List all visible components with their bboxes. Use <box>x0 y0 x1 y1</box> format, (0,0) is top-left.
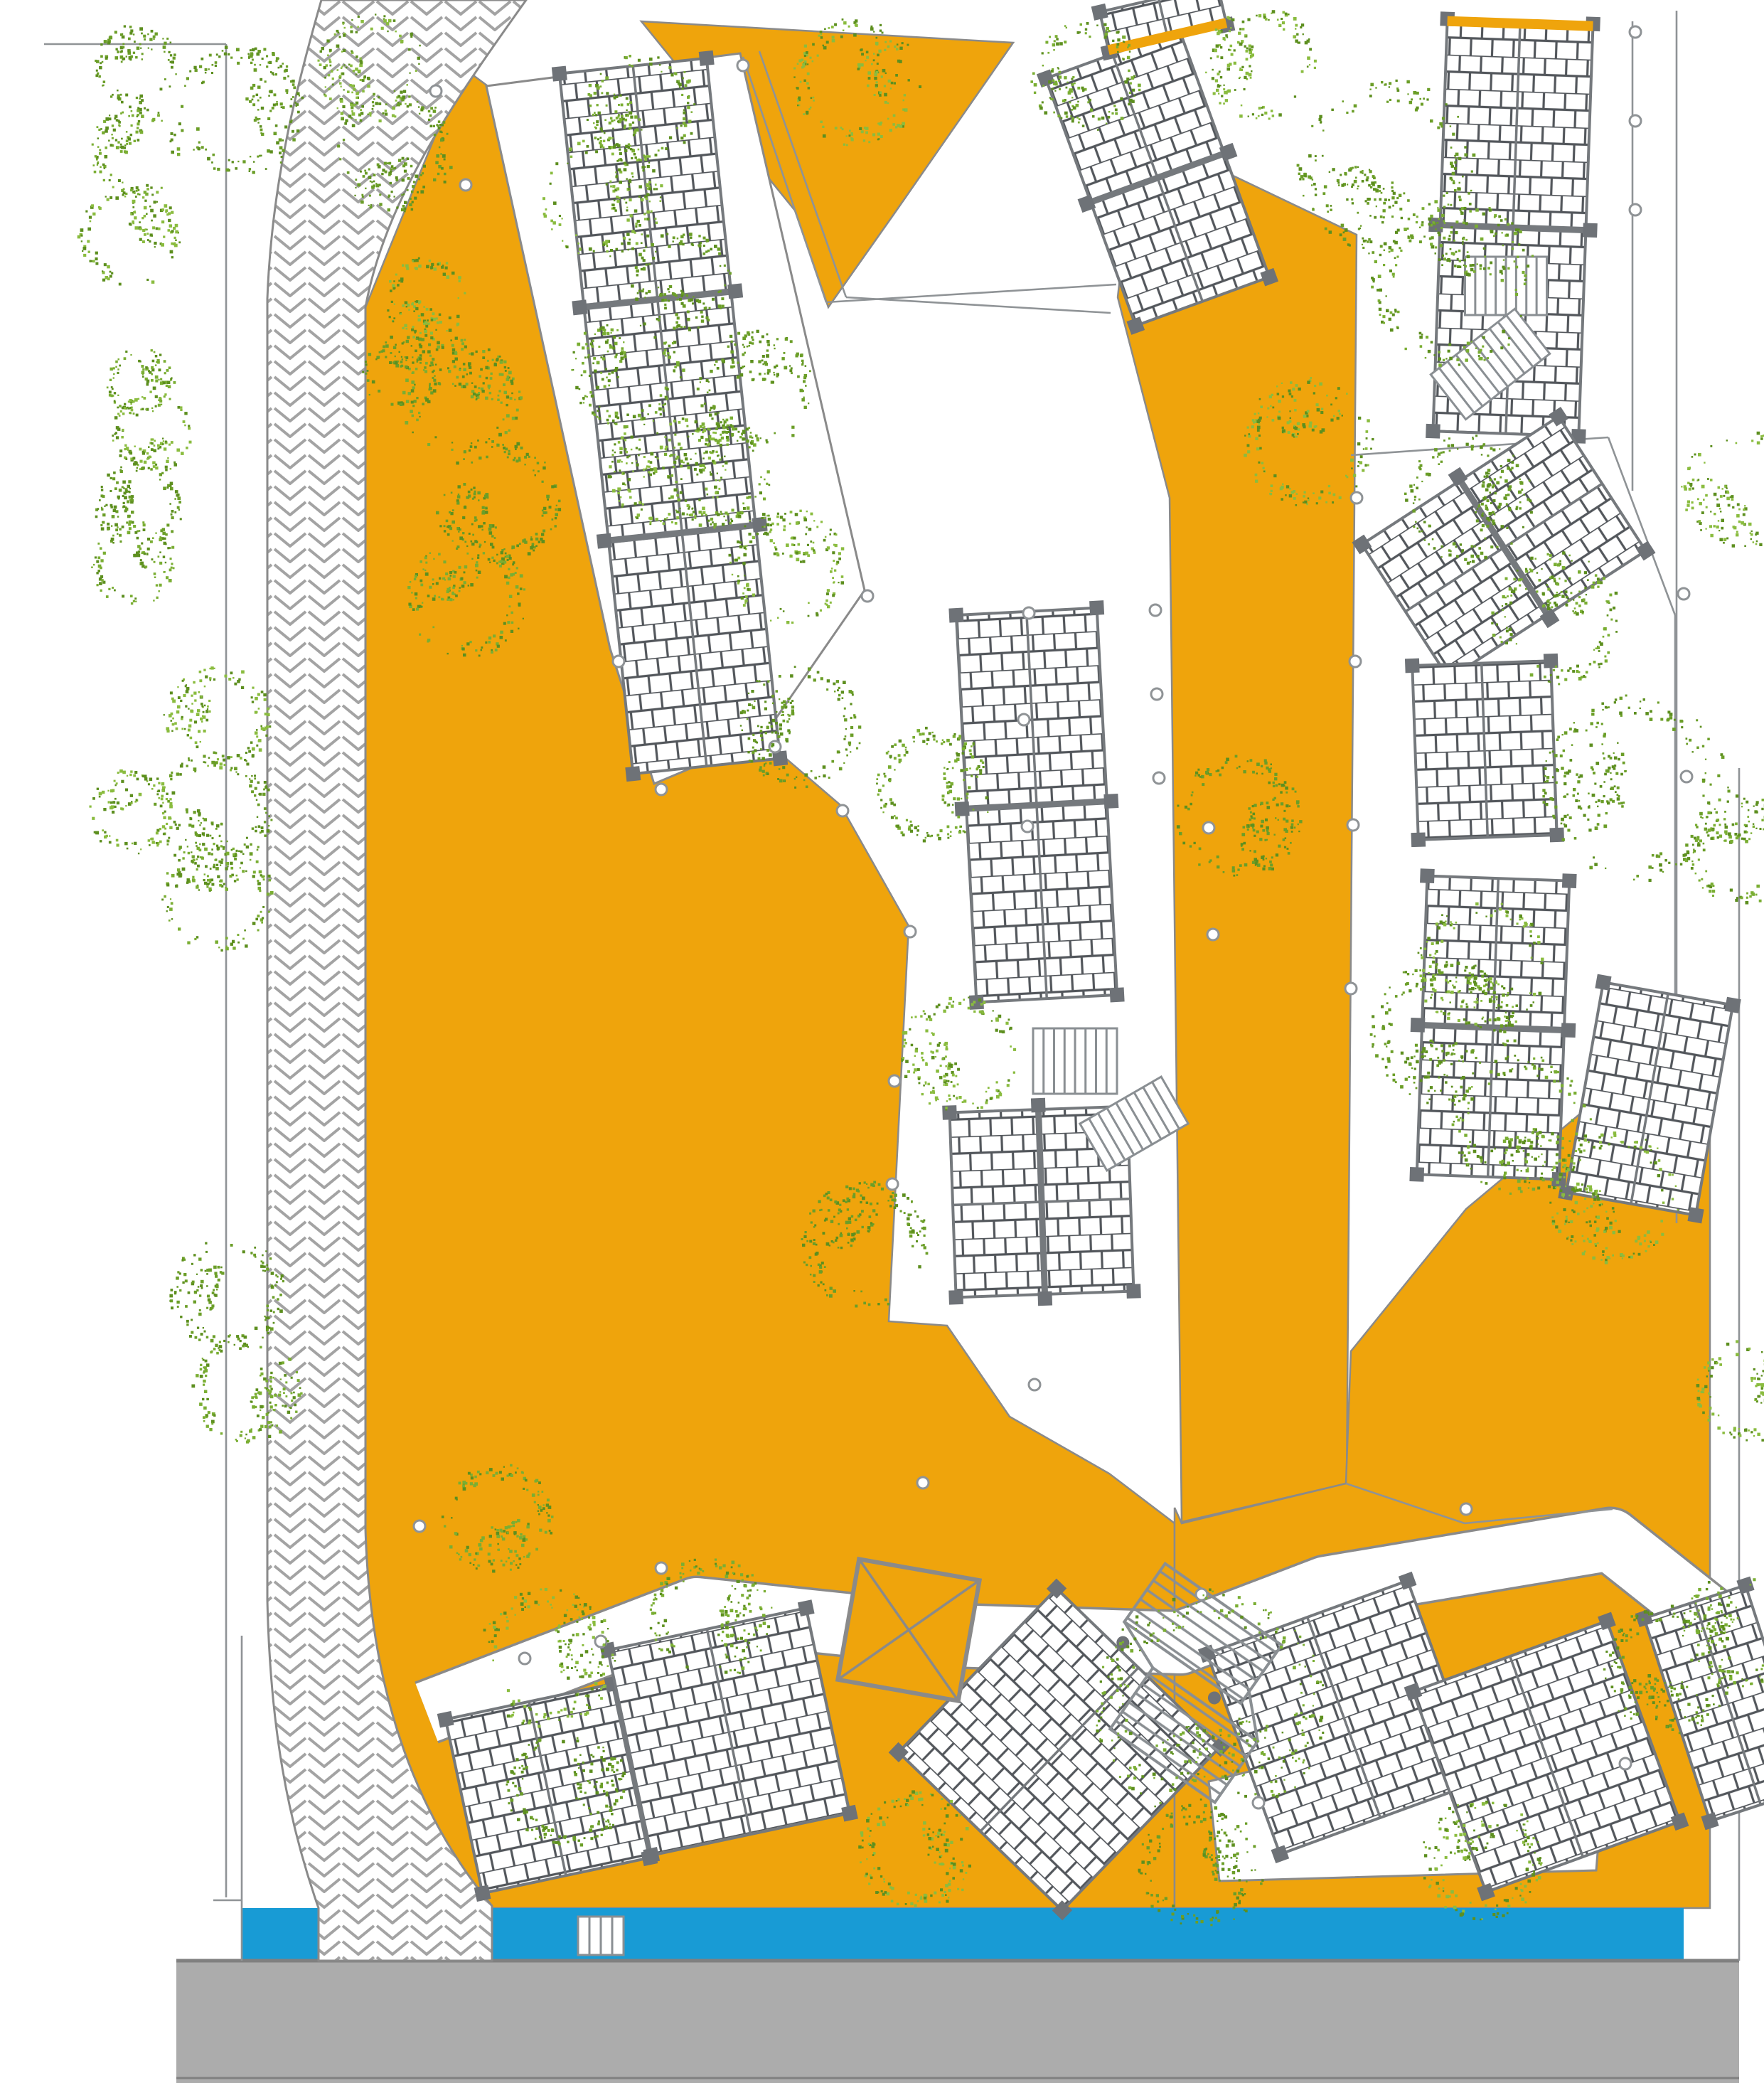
roof-corner-block <box>1409 1167 1424 1182</box>
roof-corner-block <box>437 1711 454 1728</box>
survey-marker <box>1678 588 1689 600</box>
survey-marker <box>1203 822 1214 833</box>
roof-corner-block <box>841 1805 858 1822</box>
roof-corner-block <box>1595 974 1611 991</box>
roof-corner-block <box>1420 868 1435 883</box>
roof-corner-block <box>1561 1023 1576 1038</box>
roof-corner-block <box>798 1599 815 1616</box>
survey-marker <box>1207 929 1219 940</box>
survey-marker <box>460 179 471 191</box>
x-braced-pavilion <box>838 1559 979 1700</box>
roof-corner-block <box>727 283 743 299</box>
roof-corner-block <box>1562 873 1577 888</box>
survey-marker <box>1023 607 1035 619</box>
roof-corner-block <box>1411 1018 1426 1033</box>
roof-corner-block <box>1089 600 1104 615</box>
survey-marker <box>1351 492 1362 504</box>
stair-mid-stair-a <box>1033 1028 1117 1094</box>
site-plan-document <box>0 0 1764 2083</box>
survey-marker <box>1345 983 1357 994</box>
survey-marker <box>1150 604 1161 616</box>
roof-corner-block <box>1725 997 1741 1013</box>
building-e-lower-slab <box>1405 868 1581 1187</box>
roof-corner-block <box>1583 223 1598 238</box>
survey-marker <box>887 1178 898 1190</box>
site-plan-svg <box>0 0 1764 2083</box>
roof-corner-block <box>1687 1207 1704 1223</box>
roof-corner-block <box>955 801 970 816</box>
survey-marker <box>1153 772 1165 784</box>
building-e-mid-slab <box>1405 654 1564 847</box>
survey-marker <box>1253 1797 1264 1808</box>
roof-corner-block <box>942 1105 957 1120</box>
roof-corner-block <box>1411 832 1426 847</box>
survey-marker <box>917 1477 929 1488</box>
survey-marker <box>613 656 624 667</box>
roof-corner-block <box>1103 794 1118 809</box>
survey-marker <box>1022 821 1033 832</box>
survey-marker <box>837 805 848 816</box>
roof-corner-block <box>597 533 612 549</box>
roof-corner-block <box>752 517 768 533</box>
survey-marker <box>1460 1503 1472 1515</box>
survey-marker <box>1018 714 1030 725</box>
survey-marker <box>1347 819 1359 831</box>
roof-corner-block <box>948 608 963 623</box>
roof-corner-block <box>1405 659 1420 673</box>
quay-band <box>176 1961 1739 2083</box>
roof-corner-block <box>699 50 715 66</box>
survey-marker <box>1349 656 1361 667</box>
stair-quay-stair <box>578 1917 624 1955</box>
roof-corner-block <box>969 995 984 1010</box>
survey-marker <box>656 1562 667 1574</box>
survey-marker <box>862 590 873 602</box>
roof-corner-block <box>948 1290 963 1305</box>
survey-marker <box>904 926 916 937</box>
stair-ne-stair-a <box>1465 257 1547 315</box>
survey-marker <box>737 60 749 71</box>
roof-corner-block <box>643 1847 660 1864</box>
survey-marker <box>889 1075 900 1087</box>
survey-marker <box>519 1653 530 1664</box>
survey-marker <box>656 784 667 795</box>
roof-corner-block <box>1031 1098 1046 1113</box>
survey-marker <box>1151 688 1162 700</box>
roof-corner-block <box>552 66 567 82</box>
roof-corner-block <box>1551 1172 1566 1187</box>
survey-marker <box>1681 771 1692 782</box>
roof-corner-block <box>1037 1291 1052 1306</box>
survey-marker <box>1029 1379 1040 1390</box>
survey-marker <box>1630 26 1641 38</box>
survey-marker <box>1630 204 1641 215</box>
survey-marker <box>1630 115 1641 127</box>
roof-corner-block <box>1110 987 1125 1002</box>
survey-marker <box>430 85 442 97</box>
roof-corner-block <box>1126 1284 1141 1299</box>
roof-corner-block <box>474 1885 491 1902</box>
survey-marker <box>414 1520 425 1532</box>
survey-marker <box>1620 1758 1631 1769</box>
roof-corner-block <box>1426 424 1440 439</box>
roof-corner-block <box>572 299 587 315</box>
roof-corner-block <box>625 766 641 782</box>
